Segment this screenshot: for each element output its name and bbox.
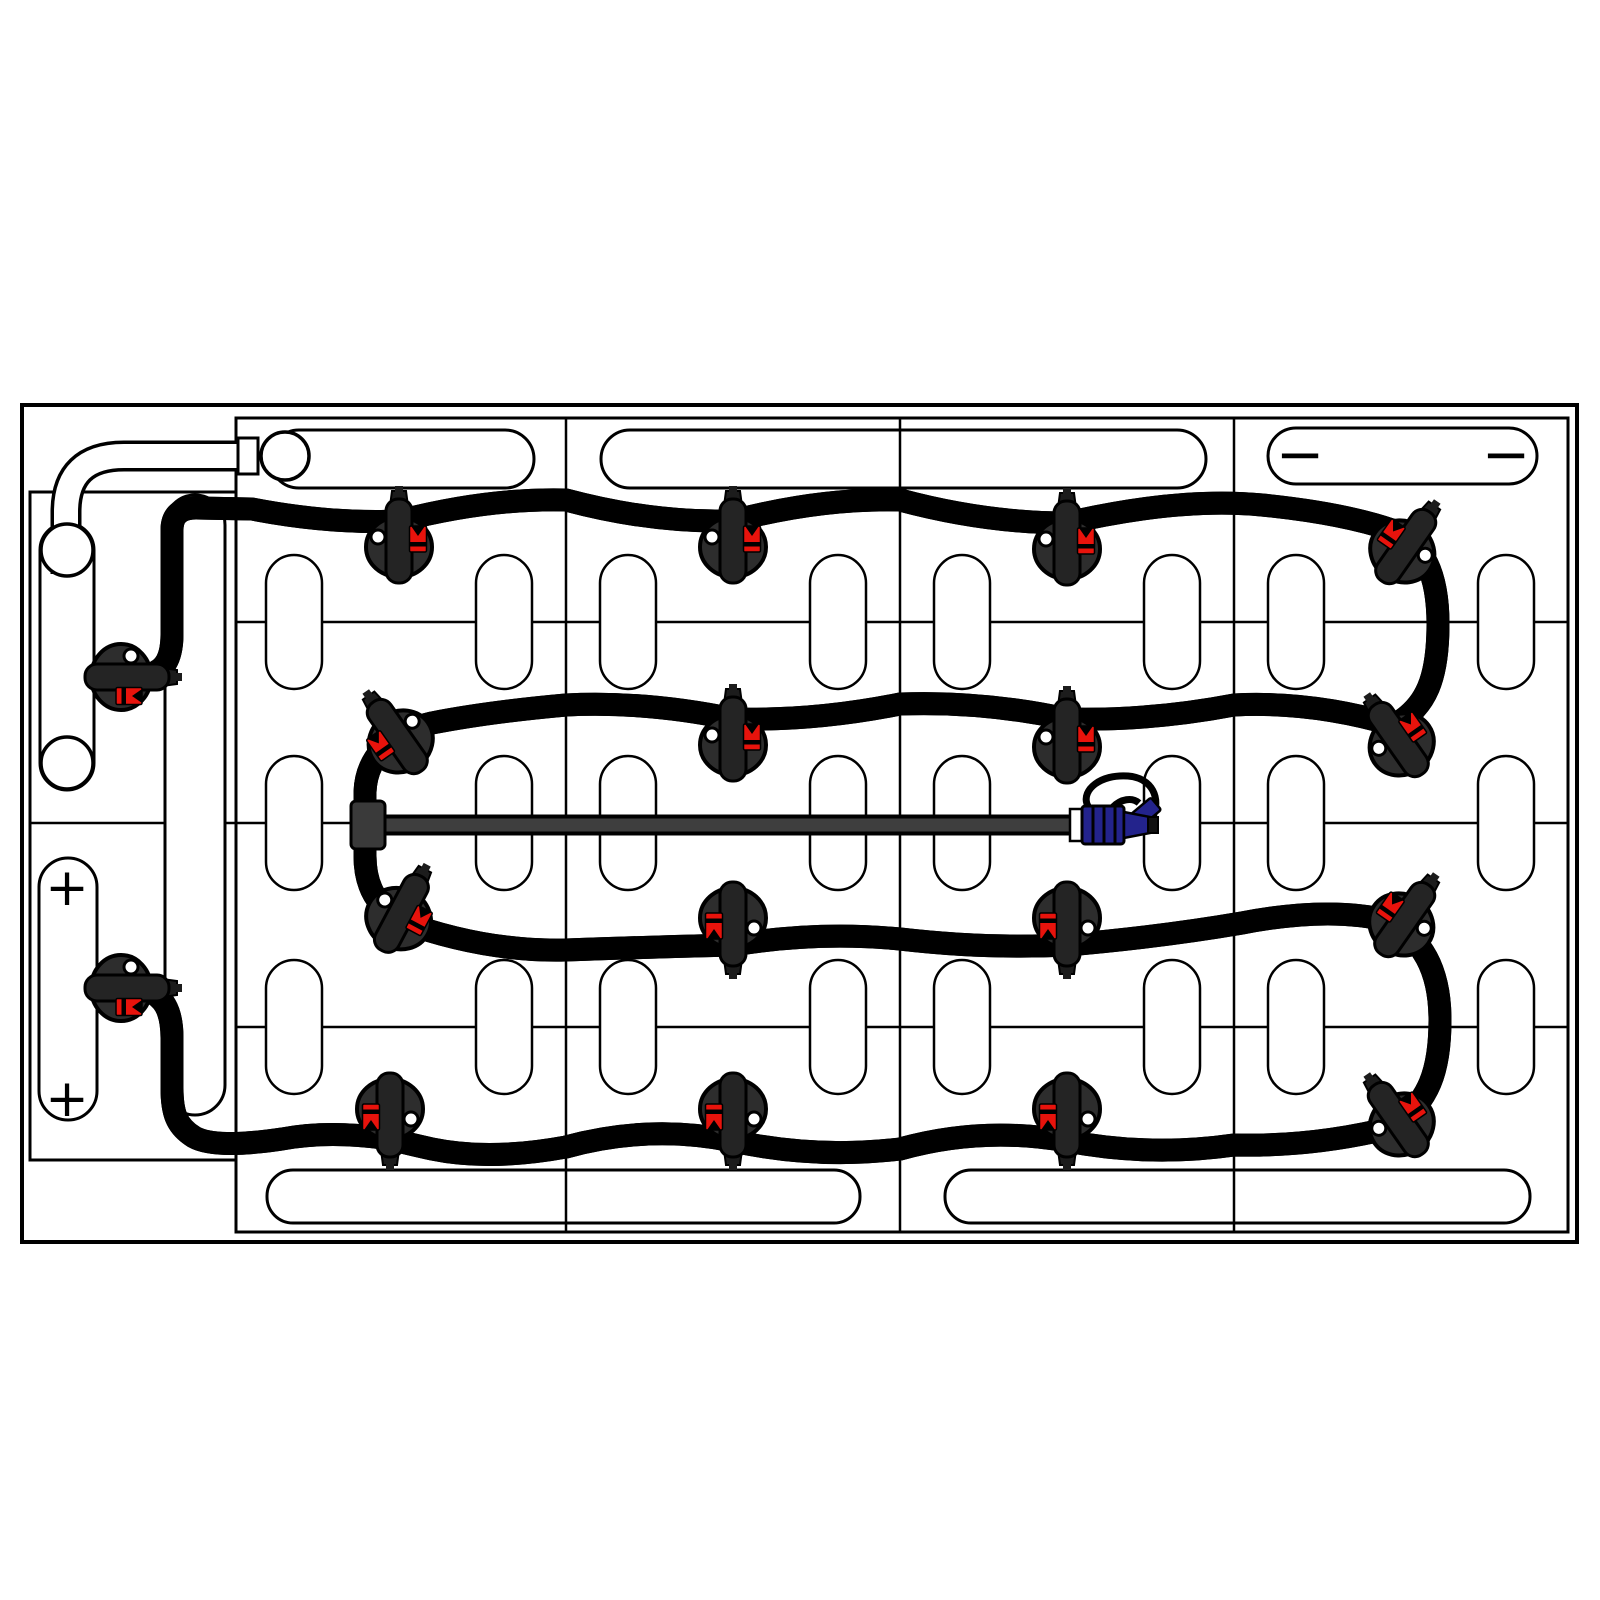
terminal-post <box>41 737 93 789</box>
tee-fitting <box>351 801 385 849</box>
terminal-post <box>41 524 93 576</box>
cell-oval <box>1268 960 1324 1094</box>
terminal-post <box>261 432 309 480</box>
cell-oval <box>1144 960 1200 1094</box>
cable-lug <box>238 438 258 474</box>
cell-oval <box>476 960 532 1094</box>
connector-collar <box>1070 809 1082 841</box>
cell-oval <box>810 555 866 689</box>
connector-tip <box>1148 817 1158 833</box>
battery-watering-diagram: − − + + <box>0 0 1600 1600</box>
cell-oval <box>266 960 322 1094</box>
cell-oval <box>1144 555 1200 689</box>
negative-terminal-label: − <box>1482 420 1531 488</box>
cell-oval <box>600 555 656 689</box>
cell-oval <box>934 960 990 1094</box>
cell-oval <box>266 555 322 689</box>
connector-nose <box>1124 812 1150 838</box>
cell-oval <box>600 960 656 1094</box>
cell-oval <box>810 960 866 1094</box>
screenshot-canvas: − − + + <box>0 0 1600 1600</box>
positive-terminal-label: + <box>45 858 89 918</box>
positive-terminal-label: + <box>45 1069 89 1129</box>
cell-oval <box>266 756 322 890</box>
cell-oval <box>476 555 532 689</box>
negative-terminal-label: − <box>1276 420 1325 488</box>
cell-oval <box>1268 555 1324 689</box>
cell-oval <box>934 555 990 689</box>
cell-oval <box>1478 756 1534 890</box>
cell-oval <box>1478 960 1534 1094</box>
cell-oval <box>1478 555 1534 689</box>
cell-oval <box>1268 756 1324 890</box>
